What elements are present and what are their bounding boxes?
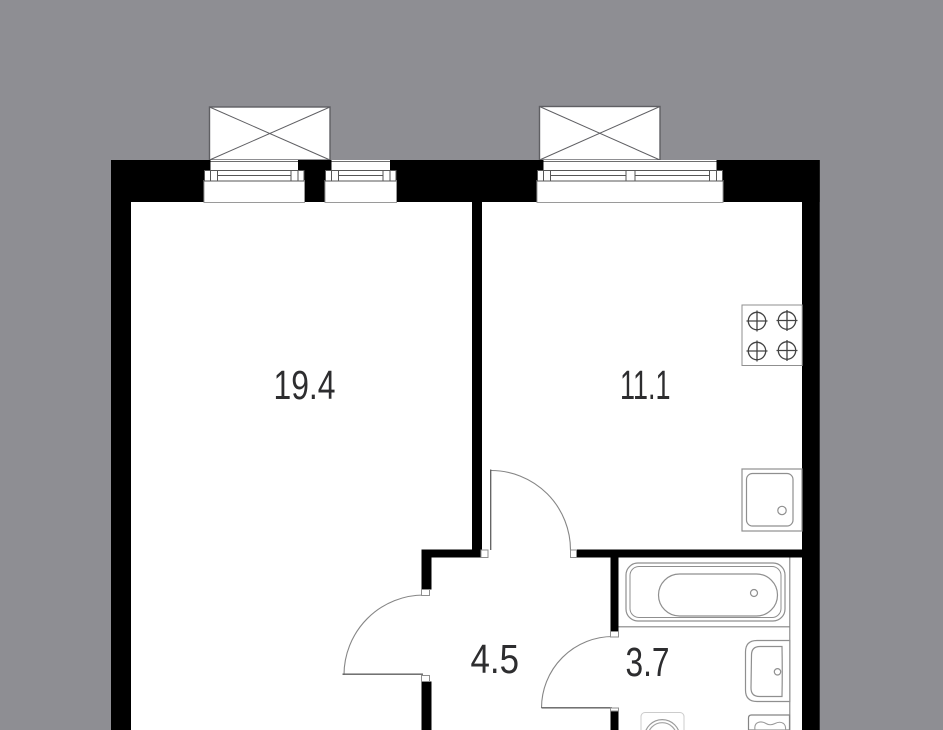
svg-text:4.5: 4.5 — [471, 636, 520, 682]
svg-text:3.7: 3.7 — [626, 639, 670, 685]
svg-text:19.4: 19.4 — [274, 362, 336, 408]
svg-text:11.1: 11.1 — [620, 362, 671, 408]
